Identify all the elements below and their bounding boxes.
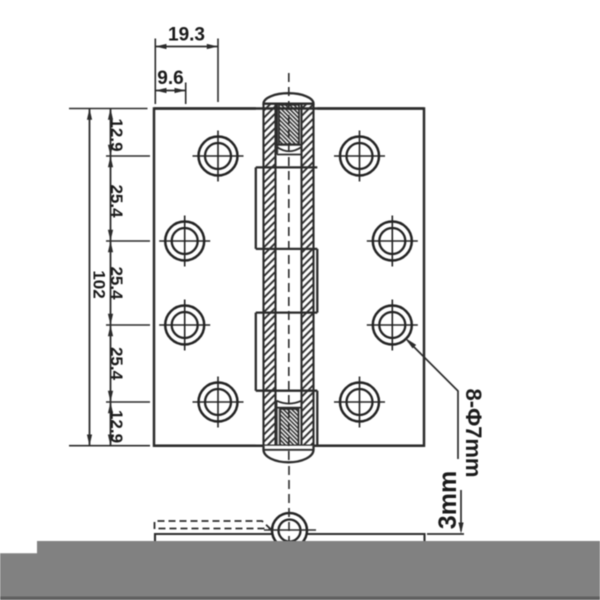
svg-text:25.4: 25.4 xyxy=(107,347,126,381)
svg-text:9.6: 9.6 xyxy=(157,68,183,89)
svg-text:12.9: 12.9 xyxy=(107,118,126,151)
svg-text:19.3: 19.3 xyxy=(168,25,205,46)
svg-text:3mm: 3mm xyxy=(434,471,462,529)
svg-text:12.9: 12.9 xyxy=(107,410,126,443)
svg-text:102: 102 xyxy=(90,270,109,298)
svg-text:25.4: 25.4 xyxy=(107,266,126,300)
svg-text:8-Φ7mm: 8-Φ7mm xyxy=(461,389,486,478)
svg-text:25.4: 25.4 xyxy=(107,184,126,218)
